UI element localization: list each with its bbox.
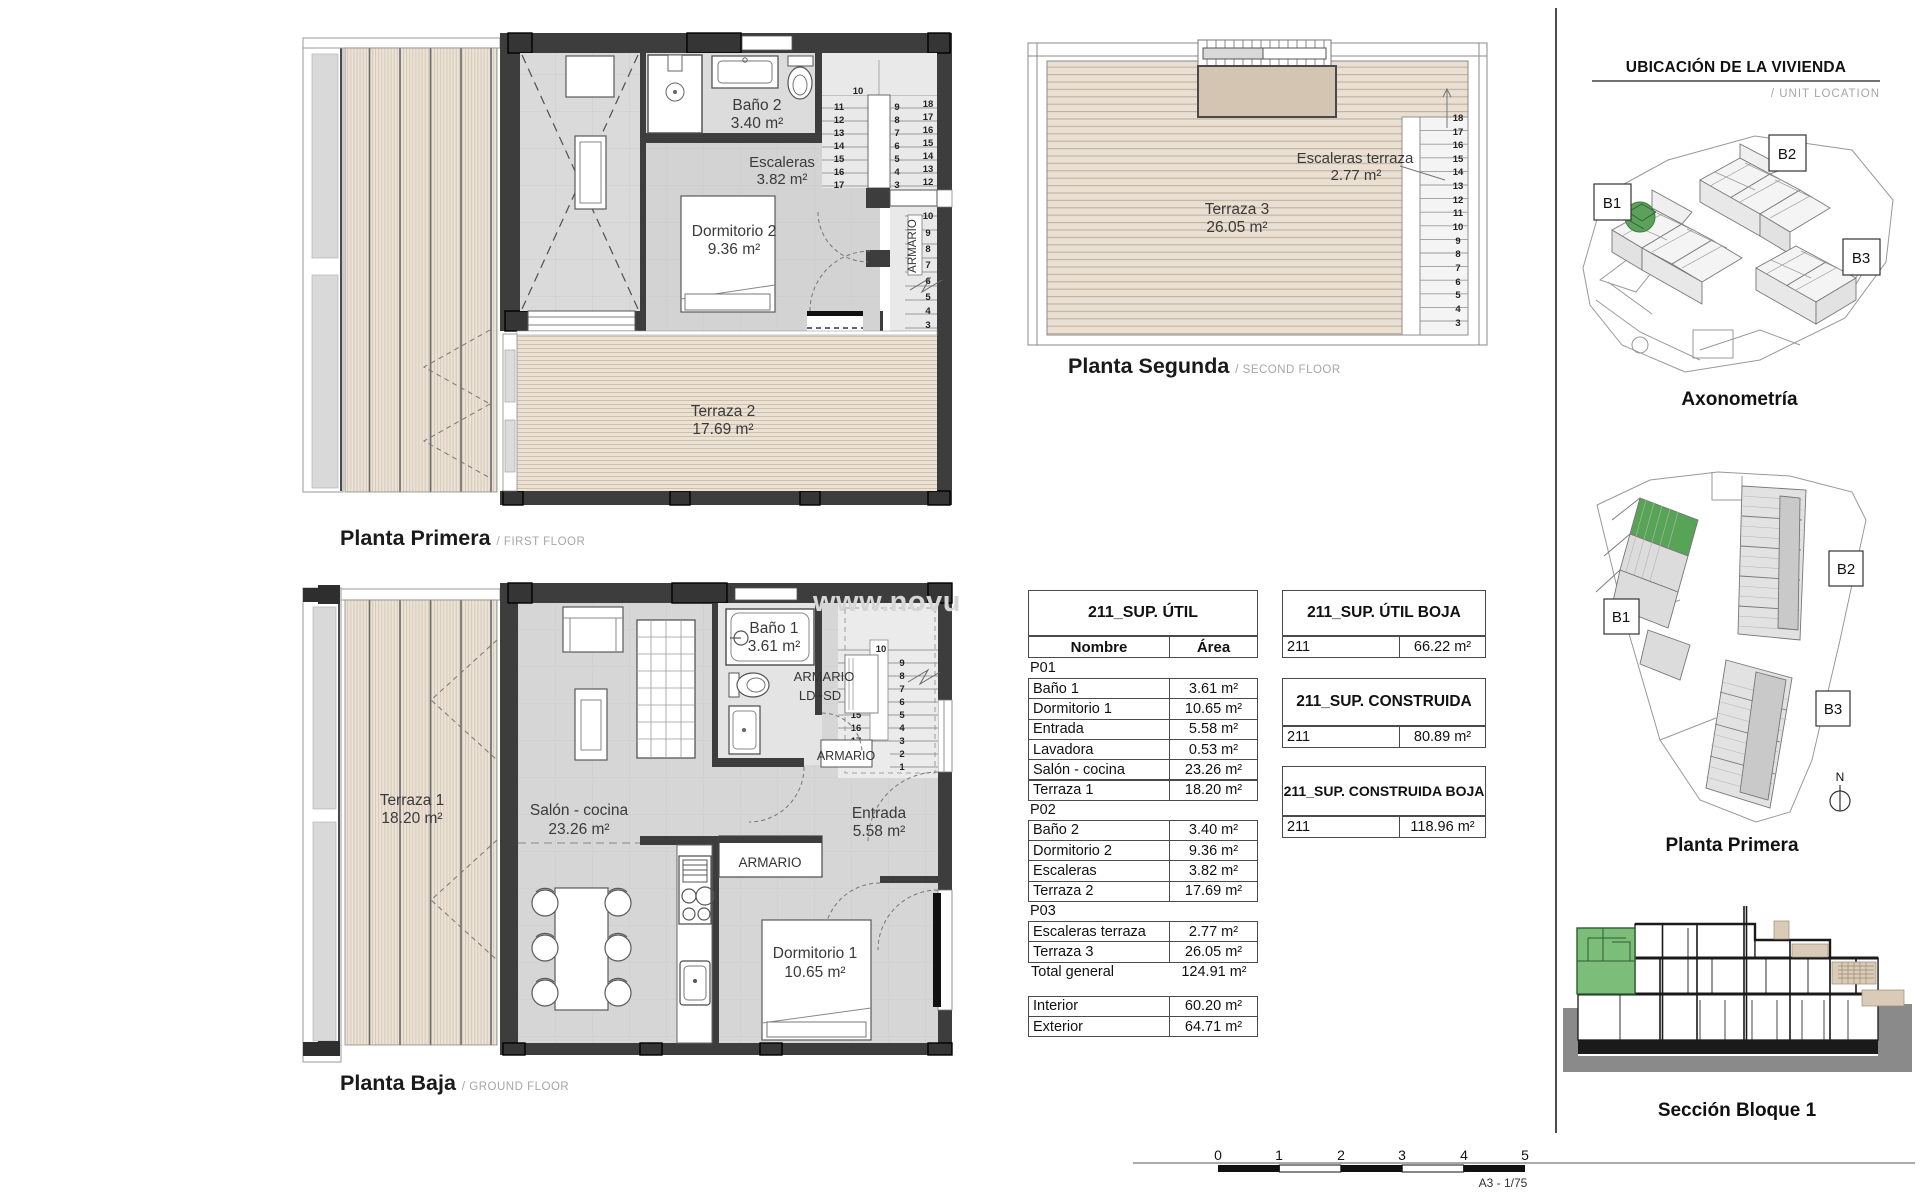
svg-text:16: 16: [923, 125, 934, 136]
svg-text:ARMARIO: ARMARIO: [738, 855, 801, 870]
svg-text:9: 9: [899, 658, 904, 669]
svg-text:B2: B2: [1778, 146, 1796, 163]
svg-text:Terraza 3: Terraza 3: [1205, 201, 1270, 218]
svg-text:4: 4: [1455, 304, 1461, 315]
svg-text:12: 12: [1453, 195, 1464, 206]
svg-text:3: 3: [1455, 318, 1460, 329]
svg-text:13: 13: [834, 128, 845, 139]
svg-text:14: 14: [1453, 167, 1464, 178]
svg-text:0: 0: [1214, 1147, 1222, 1163]
svg-text:A3 - 1/75: A3 - 1/75: [1479, 1176, 1528, 1190]
svg-text:9: 9: [894, 102, 899, 113]
svg-text:23.26 m²: 23.26 m²: [548, 821, 609, 838]
svg-text:8: 8: [1455, 249, 1460, 260]
svg-text:12: 12: [834, 115, 845, 126]
svg-text:16: 16: [834, 167, 845, 178]
svg-text:15: 15: [834, 154, 845, 165]
svg-text:10: 10: [853, 86, 864, 97]
svg-text:N: N: [1836, 770, 1845, 784]
svg-text:26.05 m²: 26.05 m²: [1206, 219, 1267, 236]
svg-text:18.20 m²: 18.20 m²: [381, 810, 442, 827]
svg-text:www.novu: www.novu: [812, 586, 961, 618]
svg-text:2.77 m²: 2.77 m²: [1331, 167, 1382, 184]
svg-text:11: 11: [1453, 208, 1464, 219]
svg-text:Baño 1: Baño 1: [749, 620, 798, 637]
svg-text:10: 10: [1453, 222, 1464, 233]
svg-text:3: 3: [925, 320, 930, 331]
svg-text:3.82 m²: 3.82 m²: [757, 171, 808, 188]
svg-text:8: 8: [925, 244, 930, 255]
svg-text:B1: B1: [1603, 195, 1621, 212]
svg-text:ARMARIO: ARMARIO: [817, 749, 876, 763]
svg-text:3: 3: [1398, 1147, 1406, 1163]
svg-text:Salón - cocina: Salón - cocina: [530, 802, 629, 819]
svg-text:ARMARIO: ARMARIO: [794, 669, 855, 684]
svg-text:8: 8: [894, 115, 899, 126]
svg-text:B2: B2: [1837, 561, 1855, 578]
svg-text:3.61 m²: 3.61 m²: [748, 638, 801, 655]
svg-text:6: 6: [894, 141, 899, 152]
svg-text:5: 5: [899, 710, 905, 721]
svg-text:16: 16: [1453, 140, 1464, 151]
svg-text:15: 15: [1453, 154, 1464, 165]
svg-text:17.69 m²: 17.69 m²: [692, 421, 753, 438]
svg-text:Terraza 1: Terraza 1: [380, 792, 445, 809]
svg-text:10: 10: [923, 211, 934, 222]
svg-text:9: 9: [1455, 236, 1460, 247]
svg-text:5: 5: [1455, 290, 1461, 301]
svg-text:10: 10: [876, 644, 887, 655]
svg-text:Entrada: Entrada: [852, 805, 907, 822]
svg-text:18: 18: [923, 99, 934, 110]
svg-text:4: 4: [1460, 1147, 1468, 1163]
svg-text:17: 17: [923, 112, 934, 123]
svg-text:7: 7: [1455, 263, 1460, 274]
svg-text:7: 7: [894, 128, 899, 139]
svg-text:B3: B3: [1852, 250, 1870, 267]
svg-text:9: 9: [925, 228, 930, 239]
svg-text:2: 2: [1337, 1147, 1345, 1163]
svg-text:10.65 m²: 10.65 m²: [784, 964, 845, 981]
svg-text:LD+SD: LD+SD: [799, 688, 841, 703]
svg-text:ARMARIO: ARMARIO: [907, 219, 919, 273]
svg-text:8: 8: [899, 671, 904, 682]
svg-text:Escaleras terraza: Escaleras terraza: [1297, 150, 1414, 167]
svg-text:1: 1: [899, 762, 905, 773]
svg-text:Dormitorio 1: Dormitorio 1: [773, 945, 857, 962]
svg-text:6: 6: [1455, 277, 1460, 288]
svg-text:9.36 m²: 9.36 m²: [708, 241, 761, 258]
svg-text:12: 12: [923, 177, 934, 188]
svg-text:2: 2: [899, 749, 904, 760]
svg-text:B1: B1: [1612, 609, 1630, 626]
svg-text:18: 18: [1453, 113, 1464, 124]
svg-text:B3: B3: [1824, 701, 1842, 718]
svg-text:5: 5: [1521, 1147, 1529, 1163]
svg-text:3: 3: [899, 736, 904, 747]
svg-text:Dormitorio 2: Dormitorio 2: [692, 223, 776, 240]
svg-text:3: 3: [894, 180, 899, 191]
svg-text:17: 17: [1453, 127, 1464, 138]
svg-text:7: 7: [899, 684, 904, 695]
svg-text:4: 4: [899, 723, 905, 734]
svg-text:5: 5: [894, 154, 900, 165]
svg-text:7: 7: [925, 260, 930, 271]
svg-text:Baño 2: Baño 2: [732, 97, 781, 114]
svg-text:14: 14: [923, 151, 934, 162]
svg-text:4: 4: [925, 306, 931, 317]
svg-text:3.40 m²: 3.40 m²: [731, 115, 784, 132]
svg-text:14: 14: [834, 141, 845, 152]
svg-text:17: 17: [834, 180, 845, 191]
svg-text:1: 1: [1275, 1147, 1283, 1163]
svg-text:11: 11: [834, 102, 845, 113]
svg-text:13: 13: [1453, 181, 1464, 192]
svg-text:4: 4: [894, 167, 900, 178]
svg-text:Escaleras: Escaleras: [749, 154, 815, 171]
svg-text:15: 15: [923, 138, 934, 149]
svg-text:5: 5: [925, 292, 931, 303]
svg-text:Terraza 2: Terraza 2: [691, 403, 756, 420]
svg-text:6: 6: [899, 697, 904, 708]
svg-text:13: 13: [923, 164, 934, 175]
svg-text:16: 16: [851, 723, 862, 734]
svg-text:5.58 m²: 5.58 m²: [853, 823, 906, 840]
